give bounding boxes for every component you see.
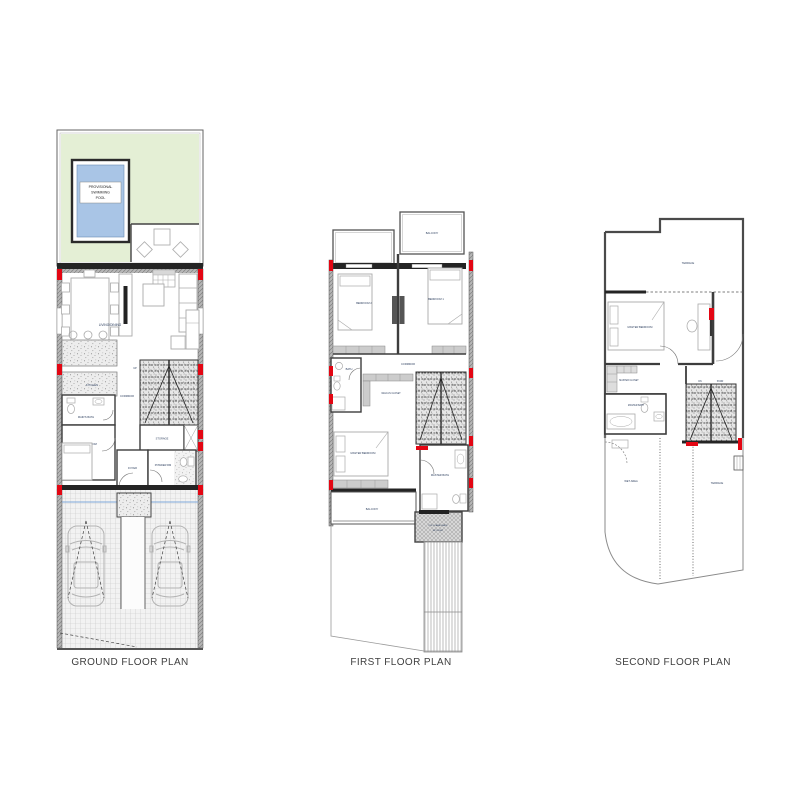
- wet-area-label: WET AREA: [624, 479, 638, 483]
- second-floor-title: SECOND FLOOR PLAN: [588, 657, 758, 668]
- roof-below: [424, 542, 462, 652]
- driveway: [57, 490, 203, 650]
- walk-in-closet: WALK-IN CLOSET: [363, 374, 413, 406]
- maids-room: MAID'S ROOM 7.5 m²: [62, 425, 115, 480]
- bath: BATH: [331, 358, 361, 412]
- center-walkway: [121, 517, 145, 609]
- terrace-top: TERRACE: [605, 261, 743, 292]
- pool-label-line3: POOL: [96, 196, 106, 200]
- pool-label-line1: PROVISIONAL: [89, 185, 113, 189]
- bedroom-wardrobes: [333, 346, 466, 354]
- ground-floor-plan: PROVISIONAL SWIMMING POOL: [55, 128, 205, 655]
- stair-label: STAIR: [717, 380, 724, 383]
- master-bedroom: MASTER BEDROOM: [605, 292, 743, 364]
- skylight-label-line2: SKYLIGHT: [433, 530, 444, 532]
- powder-room-label: POWDER RM: [155, 463, 171, 467]
- maids-bath: MAID'S BATH: [62, 395, 115, 425]
- foyer-label: FOYER: [128, 466, 137, 470]
- living-dining-label: LIVING/DINING: [99, 323, 122, 327]
- master-bath: MASTER BATH: [605, 394, 666, 434]
- pool-label-line2: SWIMMING: [91, 191, 110, 195]
- master-bath-label: MASTER BATH: [431, 473, 449, 477]
- house-front-wall: [57, 263, 203, 273]
- coffee-table: [143, 284, 164, 306]
- dn-label: DN: [698, 381, 702, 383]
- storage-room: STORAGE: [140, 425, 198, 451]
- bath-label: BATH: [346, 367, 353, 371]
- staircase: DN STAIR: [682, 366, 743, 470]
- master-closet: MASTER CLOSET: [605, 366, 666, 394]
- master-bedroom-label: MASTER BEDROOM: [628, 325, 653, 329]
- swimming-pool: PROVISIONAL SWIMMING POOL: [72, 160, 129, 242]
- master-bedroom-label: MASTER BEDROOM: [351, 451, 376, 455]
- up-label: UP: [133, 366, 137, 370]
- first-floor-title: FIRST FLOOR PLAN: [318, 657, 484, 668]
- corridor-label: CORRIDOR: [120, 394, 134, 398]
- walk-in-closet-label: WALK-IN CLOSET: [381, 392, 401, 395]
- bedroom-1: BEDROOM 1: [428, 268, 462, 324]
- first-floor-plan: BALCONY BEDROOM 2 BEDROOM 1: [328, 208, 474, 653]
- kitchen-label: KITCHEN: [86, 383, 98, 387]
- entry-wall: [57, 485, 203, 490]
- master-bath: MASTER BATH: [420, 445, 468, 511]
- skylight-label-line1: POLYCARBONATE: [428, 524, 448, 527]
- balcony-top-label: BALCONY: [426, 231, 439, 235]
- terrace-top-label: TERRACE: [682, 261, 695, 265]
- master-closet-label: MASTER CLOSET: [619, 379, 639, 382]
- bedroom-2: BEDROOM 2: [338, 274, 372, 330]
- corridor-label: CORRIDOR: [401, 362, 415, 366]
- terrace-bottom-label: TERRACE: [711, 481, 724, 485]
- master-bedroom: MASTER BEDROOM: [333, 432, 388, 488]
- staircase: [416, 372, 466, 444]
- terrace-bottom: WET AREA TERRACE: [605, 438, 723, 580]
- maids-bath-label: MAID'S BATH: [78, 415, 94, 419]
- drawing-sheet: PROVISIONAL SWIMMING POOL: [0, 0, 800, 800]
- storage-label: STORAGE: [156, 437, 169, 441]
- bedroom-2-label: BEDROOM 2: [356, 301, 372, 305]
- balcony-top-left: [333, 230, 394, 265]
- balcony-top-right: BALCONY: [400, 212, 464, 254]
- balcony-bottom: BALCONY: [331, 490, 416, 524]
- entry-planter: [117, 493, 151, 517]
- ground-floor-title: GROUND FLOOR PLAN: [45, 657, 215, 668]
- bedroom-1-label: BEDROOM 1: [428, 297, 444, 301]
- balcony-bottom-label: BALCONY: [366, 507, 379, 511]
- master-bath-label: MASTER BATH: [628, 404, 645, 407]
- staircase: UP: [133, 360, 198, 425]
- powder-room: POWDER RM: [148, 450, 196, 487]
- skylight-roof: POLYCARBONATE SKYLIGHT: [415, 510, 462, 542]
- second-floor-plan: TERRACE MASTER BEDROOM MASTER CLOSET: [598, 216, 748, 596]
- foyer: FOYER: [117, 450, 148, 487]
